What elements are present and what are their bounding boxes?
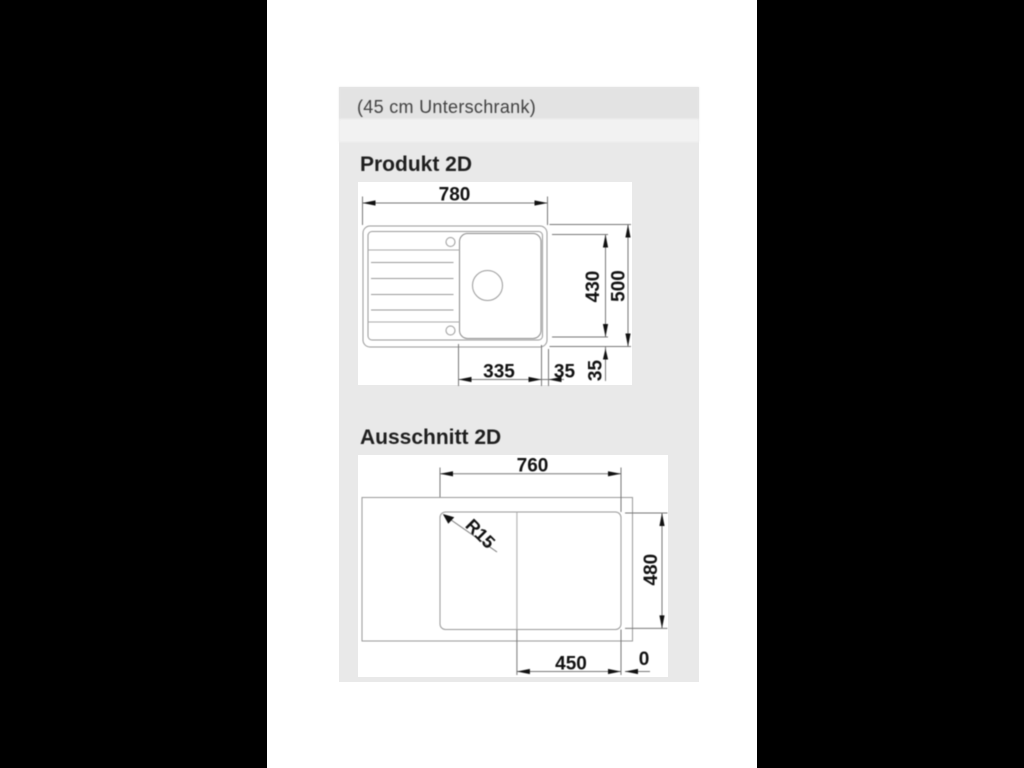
svg-text:35: 35 [586,360,607,382]
svg-text:0: 0 [639,649,650,670]
svg-text:430: 430 [583,271,604,303]
svg-text:450: 450 [555,654,587,675]
svg-text:760: 760 [517,456,549,477]
svg-text:500: 500 [609,270,630,302]
svg-text:480: 480 [641,554,662,586]
svg-text:R15: R15 [461,515,498,552]
svg-text:35: 35 [554,362,576,383]
svg-text:780: 780 [439,185,471,206]
svg-text:335: 335 [483,362,515,383]
